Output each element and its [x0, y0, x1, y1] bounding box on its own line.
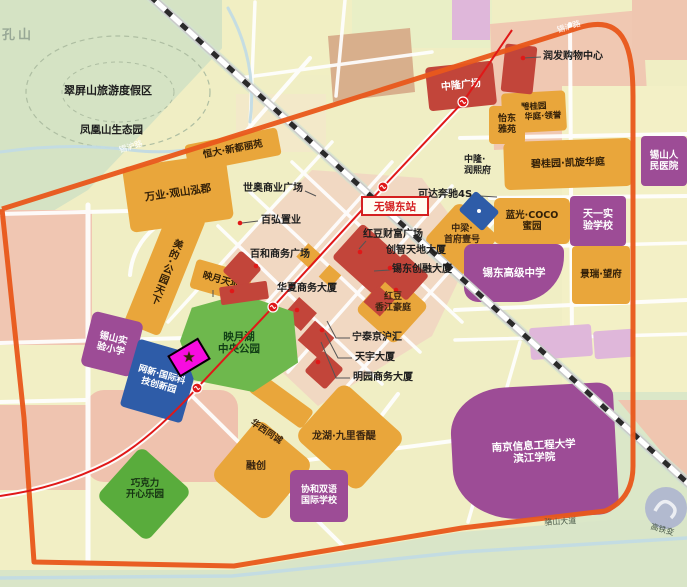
label-cuiping-resort: 翠屏山旅游度假区: [64, 84, 152, 97]
station-label-text: 无锡东站: [374, 199, 416, 214]
target-star-icon: ★: [182, 349, 195, 367]
metro-station-icon: [378, 182, 388, 192]
label-hongdou-xiangjiang: 红豆 香江豪庭: [368, 292, 418, 314]
label-runfa: 润发购物中心: [543, 51, 603, 63]
label-tianyu: 天宇大厦: [355, 352, 395, 364]
map-canvas[interactable]: 万业·观山泓郡 恒大·新都丽苑 美的·公园天下 映月天地 碧桂园 凯旋华庭·领誉…: [0, 0, 687, 587]
label-chocolate: 巧克力 开心乐园: [119, 478, 171, 501]
wuxi-east-station-label: 无锡东站: [361, 196, 429, 216]
label-mingyuan: 明园商务大厦: [353, 372, 413, 384]
white-poi-dot: [477, 209, 481, 213]
label-ningtai: 宁泰京沪汇: [352, 332, 402, 344]
metro-station-icon: [192, 383, 202, 393]
label-hongdou-fortune: 红豆财富广场: [363, 229, 423, 241]
label-baihong: 百弘置业: [261, 215, 301, 227]
label-rongchuang: 融创: [246, 461, 266, 473]
railway-line: [150, 0, 687, 487]
label-zhonglong-runxi: 中隆· 润熙府: [464, 155, 491, 177]
label-road-luoshan: 骆山大道: [544, 516, 576, 527]
label-kongshan: 孔山: [2, 28, 34, 44]
label-zhongliang: 中梁· 首府壹号: [438, 224, 486, 246]
boundary-line: [2, 24, 633, 566]
metro-station-icon: [268, 302, 278, 312]
label-shiao: 世奥商业广场: [243, 183, 303, 195]
label-chuangzhi: 创智天地大厦: [386, 245, 446, 257]
label-baihe: 百和商务广场: [250, 249, 310, 261]
label-longhu: 龙湖·九里香醍: [312, 431, 376, 443]
label-xidong-chuangrong: 锡东创融大厦: [392, 264, 452, 276]
metro-station-icon: [458, 97, 468, 107]
label-huasha: 华夏商务大厦: [277, 283, 337, 295]
label-fenghuang-park: 凤凰山生态园: [80, 124, 143, 137]
